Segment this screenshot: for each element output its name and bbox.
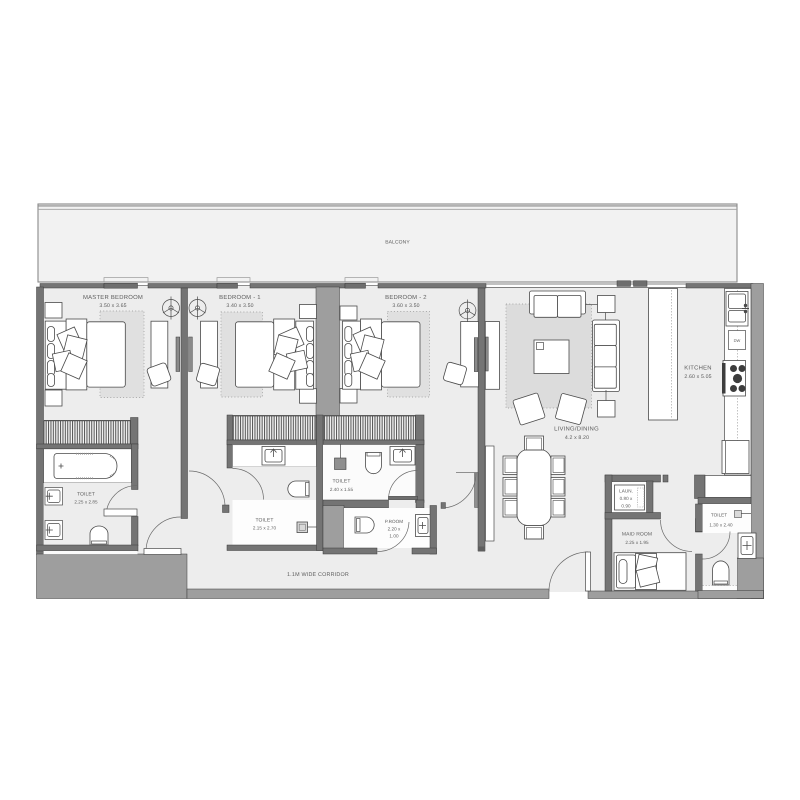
svg-text:2.15 x 2.70: 2.15 x 2.70 <box>253 526 277 531</box>
svg-text:LAUN.: LAUN. <box>619 489 633 494</box>
svg-text:3.40 x 3.50: 3.40 x 3.50 <box>226 303 253 309</box>
svg-text:0.90: 0.90 <box>621 504 631 509</box>
svg-text:1.1M WIDE CORRIDOR: 1.1M WIDE CORRIDOR <box>287 572 349 578</box>
svg-text:TOILET: TOILET <box>255 518 273 524</box>
svg-text:2.60 x 5.05: 2.60 x 5.05 <box>684 374 711 380</box>
svg-text:3.60 x 3.50: 3.60 x 3.50 <box>392 303 419 309</box>
svg-text:2.40 x 1.55: 2.40 x 1.55 <box>330 487 354 492</box>
svg-text:KITCHEN: KITCHEN <box>684 365 712 372</box>
svg-text:4.2 x 8.20: 4.2 x 8.20 <box>565 435 589 441</box>
svg-text:P.ROOM: P.ROOM <box>385 519 403 524</box>
svg-text:TOILET: TOILET <box>332 479 350 485</box>
svg-text:MAID ROOM: MAID ROOM <box>622 532 652 538</box>
svg-text:1.00: 1.00 <box>389 534 399 539</box>
svg-text:TOILET: TOILET <box>77 492 95 498</box>
svg-text:LIVING/DINING: LIVING/DINING <box>554 426 599 433</box>
svg-text:0.80 x: 0.80 x <box>620 496 633 501</box>
svg-text:2.25 x 1.95: 2.25 x 1.95 <box>625 540 649 545</box>
svg-text:BEDROOM - 2: BEDROOM - 2 <box>385 294 427 301</box>
svg-text:TOILET: TOILET <box>711 513 727 518</box>
svg-text:BEDROOM - 1: BEDROOM - 1 <box>219 294 261 301</box>
svg-text:3.50 x 3.65: 3.50 x 3.65 <box>99 303 126 309</box>
svg-text:DW: DW <box>734 338 741 343</box>
svg-text:2.25 x 2.85: 2.25 x 2.85 <box>74 500 98 505</box>
svg-text:MASTER BEDROOM: MASTER BEDROOM <box>83 294 143 301</box>
svg-text:BALCONY: BALCONY <box>385 240 410 246</box>
svg-text:2.20 x: 2.20 x <box>388 527 401 532</box>
svg-text:1.30 x 2.40: 1.30 x 2.40 <box>709 523 733 528</box>
